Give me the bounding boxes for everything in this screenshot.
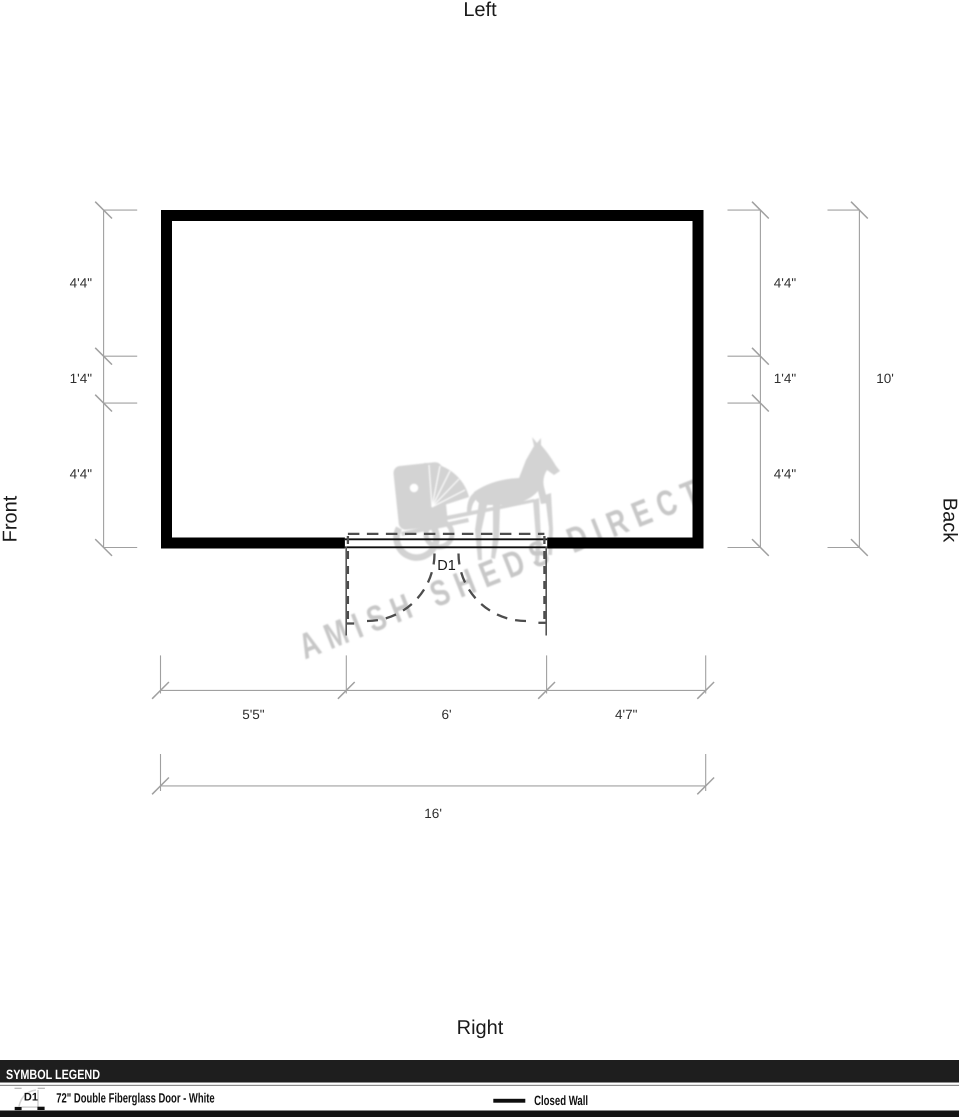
svg-text:D1: D1 — [24, 1091, 38, 1103]
svg-text:4'4": 4'4" — [70, 276, 93, 291]
svg-text:1'4": 1'4" — [774, 371, 797, 386]
svg-text:D1: D1 — [437, 558, 456, 574]
svg-text:4'7": 4'7" — [615, 707, 638, 722]
svg-text:1'4": 1'4" — [70, 371, 93, 386]
svg-text:4'4": 4'4" — [774, 276, 797, 291]
svg-text:4'4": 4'4" — [774, 467, 797, 482]
svg-text:16': 16' — [424, 806, 442, 821]
svg-text:4'4": 4'4" — [70, 467, 93, 482]
svg-text:6': 6' — [441, 707, 451, 722]
svg-text:Closed Wall: Closed Wall — [534, 1093, 588, 1108]
svg-text:Right: Right — [457, 1017, 504, 1039]
svg-text:Left: Left — [463, 0, 497, 21]
svg-text:72" Double Fiberglass Door - W: 72" Double Fiberglass Door - White — [56, 1090, 215, 1105]
svg-text:5'5": 5'5" — [242, 707, 265, 722]
svg-text:SYMBOL LEGEND: SYMBOL LEGEND — [6, 1067, 100, 1082]
svg-text:10': 10' — [876, 371, 894, 386]
svg-text:Front: Front — [0, 495, 22, 542]
svg-text:Back: Back — [939, 498, 959, 543]
